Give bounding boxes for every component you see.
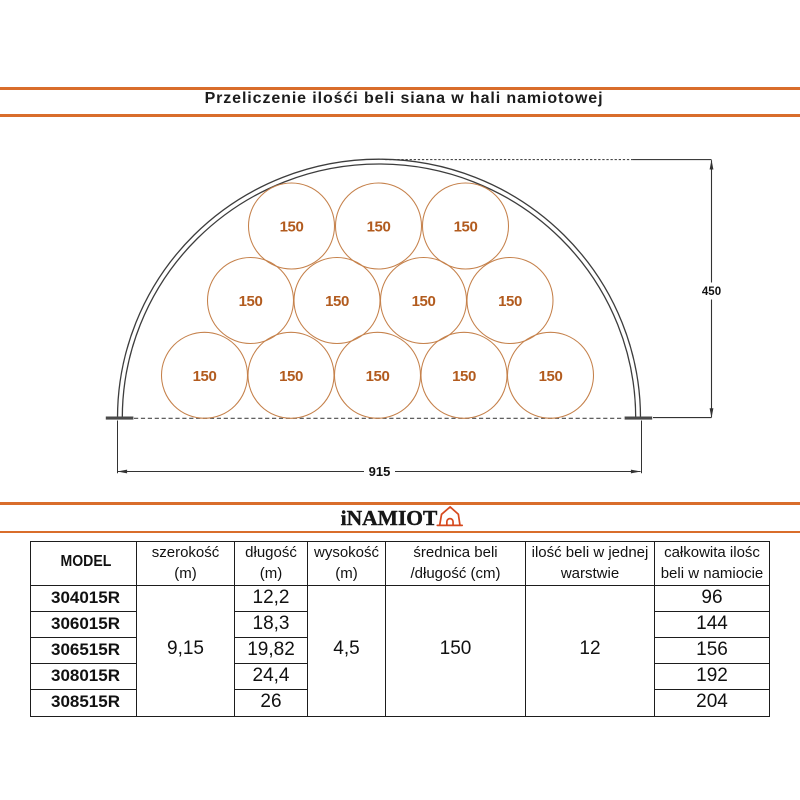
- svg-text:150: 150: [367, 219, 391, 236]
- svg-text:150: 150: [412, 293, 436, 310]
- svg-text:150: 150: [325, 293, 349, 310]
- svg-text:150: 150: [539, 368, 563, 385]
- svg-text:150: 150: [366, 368, 390, 385]
- svg-text:150: 150: [454, 219, 478, 236]
- svg-text:150: 150: [239, 293, 263, 310]
- svg-text:915: 915: [369, 464, 391, 479]
- svg-text:150: 150: [498, 293, 522, 310]
- svg-text:450: 450: [702, 286, 721, 298]
- svg-text:150: 150: [452, 368, 476, 385]
- svg-text:150: 150: [279, 368, 303, 385]
- svg-text:150: 150: [280, 219, 304, 236]
- svg-text:150: 150: [193, 368, 217, 385]
